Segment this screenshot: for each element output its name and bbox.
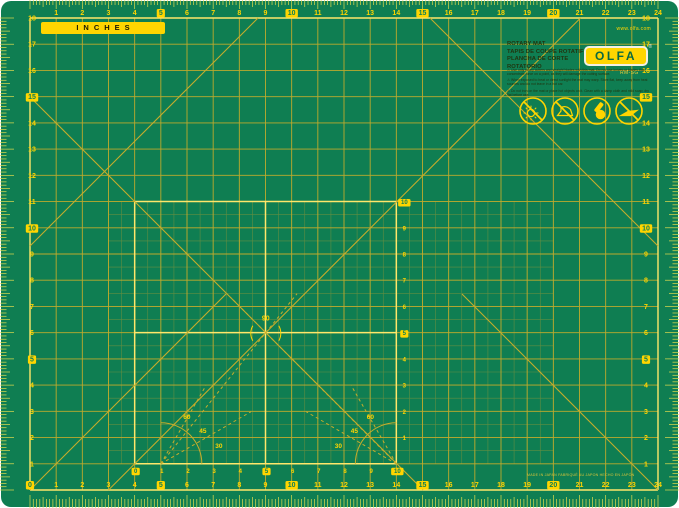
center-angle-label: 90 — [262, 316, 270, 323]
ruler-number: 6 — [644, 330, 648, 337]
ruler-number: 20 — [549, 10, 557, 17]
ruler-number: 19 — [523, 482, 531, 489]
ruler-number: 4 — [133, 10, 137, 17]
product-photo-olfa-cutting-mat: 3030454560609012345678910111213141516171… — [0, 0, 679, 508]
ruler-number: 10 — [28, 225, 36, 232]
ruler-number: 8 — [237, 482, 241, 489]
ruler-number: 24 — [654, 482, 662, 489]
ruler-number: 20 — [549, 482, 557, 489]
ruler-number: 12 — [340, 482, 348, 489]
cutting-mat-graphic: 3030454560609012345678910111213141516171… — [0, 0, 679, 508]
ruler-number: 10 — [288, 482, 296, 489]
ruler-number: 16 — [28, 68, 36, 75]
ruler-number: 5 — [159, 10, 163, 17]
ruler-number: 13 — [366, 482, 374, 489]
ruler-number: 10 — [401, 200, 408, 206]
ruler-number: 7 — [211, 482, 215, 489]
angle-label: 30 — [215, 443, 223, 450]
ruler-number: 6 — [185, 482, 189, 489]
ruler-number: 1 — [54, 10, 58, 17]
ruler-number: 16 — [445, 482, 453, 489]
ruler-number: 18 — [497, 482, 505, 489]
ruler-number: 14 — [642, 120, 650, 127]
angle-label: 60 — [183, 414, 191, 421]
ruler-number: 16 — [445, 10, 453, 17]
ruler-number: 17 — [471, 482, 479, 489]
ruler-number: 7 — [644, 304, 648, 311]
ruler-number: 14 — [392, 10, 400, 17]
ruler-number: 21 — [576, 10, 584, 17]
ruler-number: 2 — [30, 435, 34, 442]
ruler-number: 3 — [107, 10, 111, 17]
ruler-number: 8 — [30, 278, 34, 285]
ruler-number: 15 — [28, 94, 36, 101]
ruler-number: 9 — [264, 482, 268, 489]
ruler-number: 17 — [28, 42, 36, 49]
ruler-number: 13 — [366, 10, 374, 17]
ruler-number: 18 — [28, 16, 36, 23]
ruler-number: 9 — [644, 252, 648, 259]
ruler-number: 7 — [211, 10, 215, 17]
ruler-number: 18 — [497, 10, 505, 17]
ruler-number: 1 — [30, 461, 34, 468]
ruler-number: 24 — [654, 10, 662, 17]
ruler-number: 17 — [471, 10, 479, 17]
ruler-number: 11 — [642, 199, 650, 206]
ruler-number: 2 — [644, 435, 648, 442]
ruler-number: 12 — [340, 10, 348, 17]
angle-label: 45 — [351, 428, 359, 435]
ruler-number: 17 — [642, 42, 650, 49]
ruler-number: 6 — [185, 10, 189, 17]
ruler-number: 13 — [28, 147, 36, 154]
angle-label: 45 — [199, 428, 207, 435]
ruler-number: 8 — [237, 10, 241, 17]
ruler-number: 15 — [419, 482, 427, 489]
ruler-number: 13 — [642, 147, 650, 154]
ruler-number: 12 — [28, 173, 36, 180]
ruler-number: 1 — [644, 461, 648, 468]
ruler-number: 6 — [30, 330, 34, 337]
ruler-number: 5 — [644, 356, 648, 363]
ruler-number: 10 — [288, 10, 296, 17]
ruler-number: 9 — [264, 10, 268, 17]
ruler-number: 9 — [30, 252, 34, 259]
ruler-number: 5 — [30, 356, 34, 363]
ruler-number: 14 — [28, 120, 36, 127]
angle-label: 60 — [367, 414, 375, 421]
ruler-number: 7 — [30, 304, 34, 311]
ruler-number: 3 — [30, 409, 34, 416]
ruler-number: 22 — [602, 482, 610, 489]
ruler-number: 3 — [107, 482, 111, 489]
ruler-number: 12 — [642, 173, 650, 180]
ruler-number: 18 — [642, 16, 650, 23]
ruler-number: 10 — [394, 469, 401, 475]
ruler-number: 15 — [419, 10, 427, 17]
ruler-number: 16 — [642, 68, 650, 75]
ruler-number: 2 — [80, 10, 84, 17]
ruler-number: 14 — [392, 482, 400, 489]
ruler-number: 8 — [644, 278, 648, 285]
ruler-number: 4 — [133, 482, 137, 489]
ruler-number: 4 — [30, 383, 34, 390]
ruler-number: 11 — [28, 199, 36, 206]
ruler-number: 23 — [628, 10, 636, 17]
ruler-number: 21 — [576, 482, 584, 489]
ruler-number: 1 — [54, 482, 58, 489]
ruler-number: 2 — [80, 482, 84, 489]
ruler-number: 19 — [523, 10, 531, 17]
ruler-number: 3 — [644, 409, 648, 416]
ruler-number: 23 — [628, 482, 636, 489]
ruler-number: 11 — [314, 482, 322, 489]
ruler-number: 10 — [642, 225, 650, 232]
ruler-number: 22 — [602, 10, 610, 17]
ruler-number: 15 — [642, 94, 650, 101]
angle-label: 30 — [335, 443, 343, 450]
ruler-number: 0 — [28, 482, 32, 489]
ruler-number: 4 — [644, 383, 648, 390]
ruler-number: 5 — [159, 482, 163, 489]
ruler-number: 11 — [314, 10, 322, 17]
